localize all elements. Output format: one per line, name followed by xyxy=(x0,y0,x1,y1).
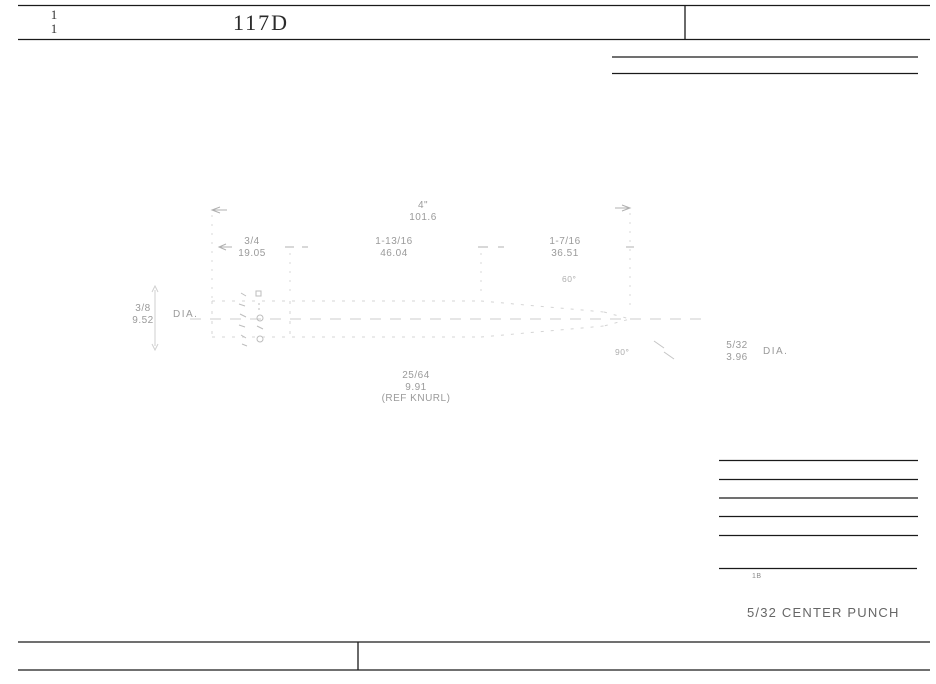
dim-taper-length: 1-7/16 36.51 xyxy=(549,236,580,259)
leader-tick xyxy=(664,352,674,359)
dim-mm: 19.05 xyxy=(238,248,266,260)
revision-block-lines xyxy=(612,57,918,74)
dim-mm: 9.52 xyxy=(132,315,153,327)
dim-overall-length: 4" 101.6 xyxy=(409,200,437,223)
dim-mm: 36.51 xyxy=(549,248,580,260)
point-dia-leaders xyxy=(654,341,674,359)
parts-list-lines xyxy=(719,461,918,569)
body-dia-suffix: DIA. xyxy=(173,309,198,320)
taper-bottom-edge xyxy=(481,326,604,337)
dim-inches: 1-13/16 xyxy=(375,236,412,248)
dim-mm: 101.6 xyxy=(409,212,437,224)
center-punch-drawing xyxy=(152,205,706,359)
dim-inches: 1-7/16 xyxy=(549,236,580,248)
point-angle-label: 90° xyxy=(615,347,629,357)
drawing-sheet: 1 1 117D 4" 101.6 3/4 19.05 1-13/16 46.0… xyxy=(0,0,936,684)
taper-top-edge xyxy=(481,301,604,312)
note-mark: 1B xyxy=(752,573,762,580)
sheet-number-top: 1 xyxy=(47,8,61,21)
dim-inches: 3/8 xyxy=(132,303,153,315)
dim-mm: 9.91 xyxy=(382,382,451,394)
dim-inches: 5/32 xyxy=(726,340,747,352)
dim-knurl-diameter: 25/64 9.91 (REF KNURL) xyxy=(382,370,451,405)
title-bar-lines xyxy=(18,6,930,40)
taper-angle-label: 60° xyxy=(562,274,576,284)
dim-inches: 25/64 xyxy=(382,370,451,382)
dim-mm: 46.04 xyxy=(375,248,412,260)
dim-inches: 4" xyxy=(409,200,437,212)
sheet-number-bottom: 1 xyxy=(47,22,61,35)
dim-note: (REF KNURL) xyxy=(382,393,451,405)
extension-lines xyxy=(212,213,630,312)
sheet-line-work xyxy=(0,0,936,684)
dim-body-diameter: 3/8 9.52 xyxy=(132,303,153,326)
point-dia-suffix: DIA. xyxy=(763,346,788,357)
dim-inches: 3/4 xyxy=(238,236,266,248)
dim-mm: 3.96 xyxy=(726,352,747,364)
leader-tick xyxy=(654,341,664,348)
footer-bar-lines xyxy=(18,642,930,670)
part-name: 5/32 CENTER PUNCH xyxy=(747,605,900,620)
dim-point-diameter: 5/32 3.96 xyxy=(726,340,747,363)
drawing-number: 117D xyxy=(233,10,289,36)
dim-knurl-length: 3/4 19.05 xyxy=(238,236,266,259)
dim-body-length: 1-13/16 46.04 xyxy=(375,236,412,259)
